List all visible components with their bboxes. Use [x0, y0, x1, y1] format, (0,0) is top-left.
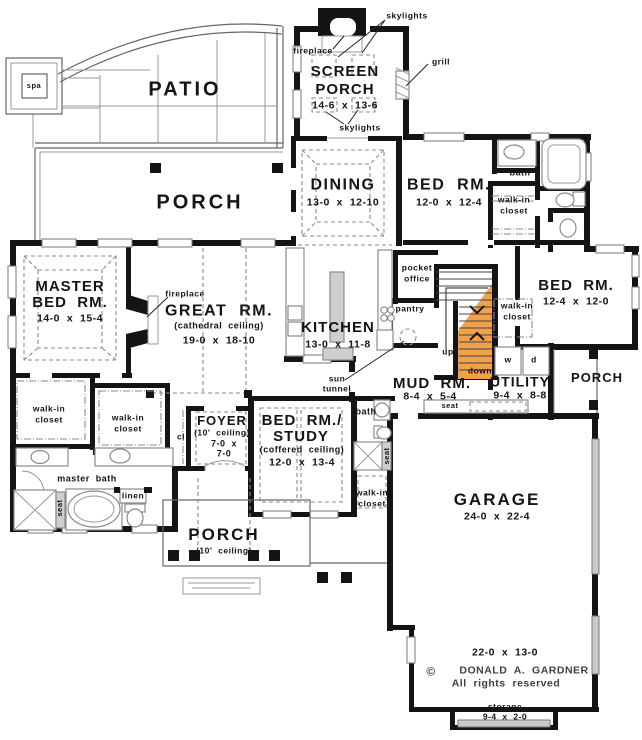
sun-tunnel-label-2: tunnel	[323, 385, 352, 394]
wic-right-label-2: closet	[503, 313, 531, 322]
foyer-ceiling-label: (10' ceiling)	[194, 429, 250, 438]
pocket-office-label-1: pocket	[402, 264, 432, 273]
wic-study-label-1: walk-in	[356, 489, 388, 498]
seat-shower-label: seat	[383, 447, 391, 464]
wic-top-label-1: walk-in	[498, 196, 530, 205]
wic-study-label-2: closet	[358, 500, 386, 509]
room-label-rear-porch: PORCH	[156, 193, 243, 214]
front-porch-ceiling-label: (10' ceiling)	[196, 547, 252, 556]
wic-top-label-2: closet	[500, 207, 528, 216]
stairs-up-label: up	[442, 348, 453, 357]
room-label-bed-right: BED RM.	[538, 278, 614, 294]
wic-left2-label-2: closet	[114, 425, 142, 434]
room-label-utility: UTILITY	[490, 375, 550, 390]
room-label-foyer: FOYER	[197, 414, 247, 428]
dims-great: 19-0 x 18-10	[183, 335, 255, 346]
room-label-garage: GARAGE	[454, 491, 541, 509]
dims-study: 12-0 x 13-4	[269, 457, 335, 468]
room-label-screen-porch-2: PORCH	[315, 82, 374, 98]
grill-label: grill	[432, 58, 450, 67]
rights-reserved: All rights reserved	[452, 678, 561, 689]
dims-screen-porch: 14-6 x 13-6	[312, 100, 378, 111]
fireplace-screenporch-label: fireplace	[293, 47, 332, 56]
dims-kitchen: 13-0 x 11-8	[305, 339, 370, 350]
bath-top-label: bath	[510, 168, 531, 177]
room-label-kitchen: KITCHEN	[301, 320, 375, 336]
room-label-right-porch: PORCH	[571, 371, 623, 385]
dims-garage-ext: 22-0 x 13-0	[472, 647, 538, 658]
storage-label: storage	[488, 703, 522, 712]
room-label-bed-top: BED RM.	[407, 178, 491, 195]
sun-tunnel-label-1: sun	[329, 375, 346, 384]
staircase	[436, 272, 492, 379]
room-label-front-porch: PORCH	[188, 526, 259, 544]
seat-master-label: seat	[56, 499, 64, 516]
master-bath-label: master bath	[57, 474, 117, 483]
patio-area	[6, 24, 283, 148]
room-label-master-2: BED RM.	[32, 295, 108, 311]
spa-label: spa	[27, 82, 41, 90]
dims-utility: 9-4 x 8-8	[493, 390, 546, 401]
floor-plan: spa PATIO skylights fireplace SCREEN POR…	[0, 0, 642, 740]
author-credit: DONALD A. GARDNER	[459, 665, 588, 676]
dims-bed-top: 12-0 x 12-4	[416, 197, 482, 208]
pantry-label: pantry	[396, 305, 425, 314]
study-ceiling-label: (coffered ceiling)	[260, 445, 345, 454]
room-label-screen-porch-1: SCREEN	[311, 64, 380, 80]
bath-mid-label: bath	[356, 407, 377, 416]
wic-left1-label-1: walk-in	[33, 405, 65, 414]
wic-right-label-1: walk-in	[501, 302, 533, 311]
dims-foyer-2: 7-0	[217, 449, 232, 458]
room-label-dining: DINING	[311, 178, 376, 195]
dims-master: 14-0 x 15-4	[37, 313, 103, 324]
stairs-down-label: down	[468, 367, 492, 376]
dryer-label: d	[531, 356, 537, 365]
fireplace-greatrm-label: fireplace	[165, 290, 204, 299]
dims-storage: 9-4 x 2-0	[483, 713, 527, 722]
copyright-symbol: ©	[426, 666, 435, 679]
room-label-study-1: BED RM./	[262, 413, 343, 429]
dims-dining: 13-0 x 12-10	[307, 197, 379, 208]
wic-left2-label-1: walk-in	[112, 414, 144, 423]
seat-bench-label: seat	[441, 402, 458, 410]
room-label-master-1: MASTER	[35, 279, 104, 295]
washer-label: w	[504, 356, 511, 365]
great-ceiling-label: (cathedral ceiling)	[174, 321, 264, 330]
wic-left1-label-2: closet	[35, 416, 63, 425]
room-label-study-2: STUDY	[273, 429, 329, 445]
skylights-top-label: skylights	[386, 12, 427, 21]
dims-garage: 24-0 x 22-4	[464, 511, 530, 522]
pocket-office-label-2: office	[404, 275, 430, 284]
room-label-great: GREAT RM.	[165, 304, 273, 321]
room-label-patio: PATIO	[148, 80, 221, 101]
closet-cl-label: cl	[177, 433, 185, 442]
skylights-bottom-label: skylights	[339, 124, 380, 133]
dims-bed-right: 12-4 x 12-0	[543, 296, 609, 307]
linen-label: linen	[122, 492, 144, 501]
